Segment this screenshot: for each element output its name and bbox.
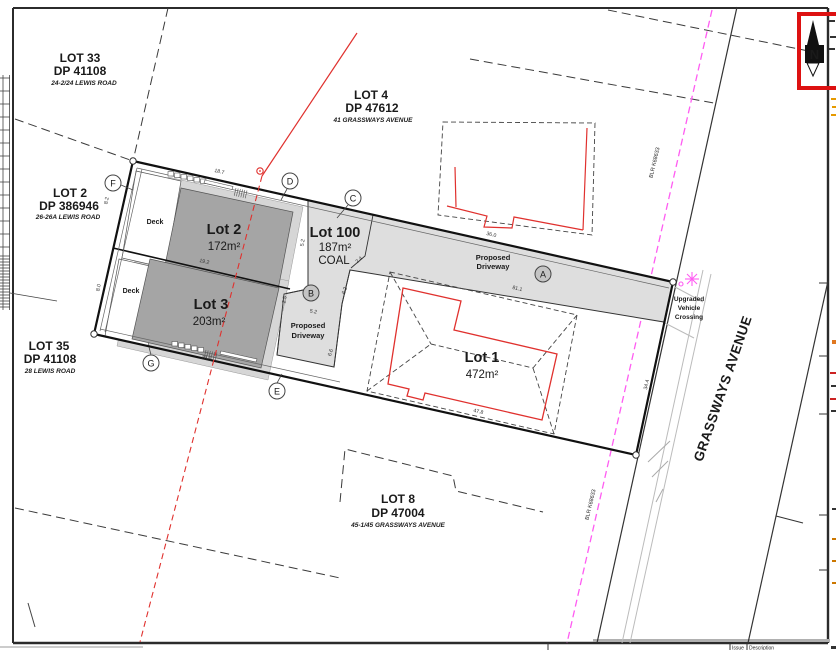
north-label: N <box>810 47 819 62</box>
dim-36-0: 36.0 <box>486 231 497 239</box>
lot35-name: LOT 35 <box>29 339 70 353</box>
dim-8-0: 8.0 <box>95 283 102 291</box>
lot2dp-dp: DP 386946 <box>39 199 99 213</box>
marker-b-label: B <box>308 289 314 299</box>
lot3-name: Lot 3 <box>194 297 229 313</box>
lot2-area: 172m² <box>208 241 241 253</box>
titleblock-description: Description <box>749 646 774 650</box>
lot100-area: 187m² <box>319 242 352 254</box>
dim-18-7: 18.7 <box>214 168 225 176</box>
lot4-address: 41 GRASSWAYS AVENUE <box>333 117 414 124</box>
driveway-main-label-1: Proposed <box>476 253 511 262</box>
crossing-label-3: Crossing <box>675 314 703 321</box>
marker-e-label: E <box>274 387 280 397</box>
misc-corner-line <box>28 603 35 627</box>
driveway-main-label-2: Driveway <box>477 262 511 271</box>
frame-ticks <box>819 283 828 570</box>
marker-f-label: F <box>110 179 116 189</box>
lot33-address: 24-2/24 LEWIS ROAD <box>50 80 117 87</box>
lot100-tenure: COAL <box>318 255 350 267</box>
plan-canvas: A B C D E F G 18.7 19.2 28.6 8.2 8.0 5.2… <box>0 0 836 650</box>
deck2-label: Deck <box>123 288 140 295</box>
titleblock-shadow-bar <box>593 639 830 642</box>
dim-8-2: 8.2 <box>103 196 110 204</box>
lot2dp-address: 26-26A LEWIS ROAD <box>35 214 101 221</box>
marker-a-label: A <box>540 270 546 280</box>
marker-c-label: C <box>350 194 357 204</box>
site-plan-drawing: A B C D E F G 18.7 19.2 28.6 8.2 8.0 5.2… <box>0 0 836 650</box>
lot4-dp: DP 47612 <box>345 101 398 115</box>
lot8-address: 45-1/45 GRASSWAYS AVENUE <box>350 522 445 529</box>
lot4-name: LOT 4 <box>354 88 388 102</box>
driveway-small-label-2: Driveway <box>292 331 326 340</box>
crossing-label-2: Vehicle <box>678 305 701 312</box>
edge-text-fragments <box>829 20 836 649</box>
lot2dp-name: LOT 2 <box>53 186 87 200</box>
deck1-label: Deck <box>147 219 164 226</box>
dim-2-5: 2.5 <box>281 296 288 304</box>
easement-label-1: BLR K68633 <box>649 147 662 179</box>
lot4-dwelling <box>438 122 595 235</box>
survey-star-icon <box>679 272 699 286</box>
lot2-name: Lot 2 <box>207 222 242 238</box>
marker-g-label: G <box>147 359 154 369</box>
lot8-dp: DP 47004 <box>371 506 424 520</box>
lot8-name: LOT 8 <box>381 492 415 506</box>
lot33-name: LOT 33 <box>60 51 101 65</box>
lot1-area: 472m² <box>466 369 499 381</box>
lot100-name: Lot 100 <box>310 225 361 241</box>
north-arrow-icon: N <box>805 20 824 76</box>
dim-47-8: 47.8 <box>473 408 484 416</box>
lot35-address: 28 LEWIS ROAD <box>24 368 76 375</box>
lot3-area: 203m² <box>193 316 226 328</box>
titleblock-issue: Issue <box>732 646 744 650</box>
dim-6-2: 6.2 <box>341 286 349 295</box>
street-name: GRASSWAYS AVENUE <box>691 314 755 464</box>
lot1-name: Lot 1 <box>465 350 500 366</box>
marker-d-label: D <box>287 177 294 187</box>
lot35-dp: DP 41108 <box>24 352 77 366</box>
left-road-ladder <box>0 75 57 310</box>
lot33-dp: DP 41108 <box>54 64 107 78</box>
crossing-label-1: Upgraded <box>674 296 704 303</box>
driveway-small-label-1: Proposed <box>291 321 326 330</box>
dim-5-2a: 5.2 <box>299 239 306 247</box>
